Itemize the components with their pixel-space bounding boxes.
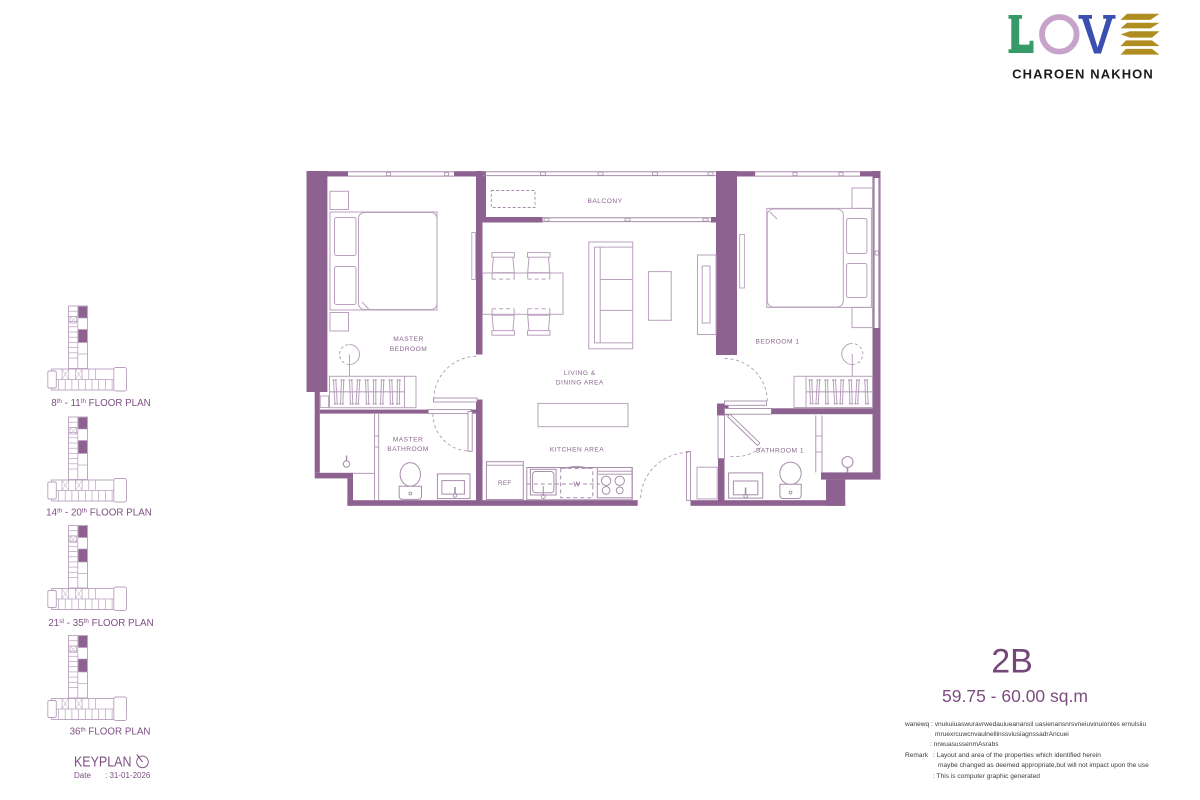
svg-text:: Layout and area of the prope: : Layout and area of the properties whic… [933, 752, 1101, 759]
svg-text:: This is computer graphic gen: : This is computer graphic generated [933, 773, 1040, 780]
svg-text:MASTER: MASTER [393, 437, 423, 444]
svg-text:2B: 2B [991, 643, 1033, 681]
svg-text:MASTER: MASTER [393, 336, 423, 343]
svg-text:Remark: Remark [905, 752, 929, 759]
svg-text:8th - 11th FLOOR PLAN: 8th - 11th FLOOR PLAN [51, 398, 150, 409]
svg-text:maybe changed as deemed approp: maybe changed as deemed appropriate,but … [938, 762, 1149, 769]
svg-text:BEDROOM 1: BEDROOM 1 [755, 339, 799, 346]
svg-text:KITCHEN AREA: KITCHEN AREA [550, 447, 604, 454]
svg-text:21st - 35th FLOOR PLAN: 21st - 35th FLOOR PLAN [48, 618, 153, 629]
svg-text:: 31-01-2026: : 31-01-2026 [105, 771, 151, 780]
svg-text:mruexrcuwcnvaulnellinssviusiag: mruexrcuwcnvaulnellinssviusiagnssadrAncu… [935, 731, 1069, 738]
svg-text:14th - 20th FLOOR PLAN: 14th - 20th FLOOR PLAN [46, 507, 152, 518]
svg-text:BALCONY: BALCONY [587, 198, 622, 205]
svg-text:Date: Date [74, 771, 91, 780]
svg-text:LIVING &: LIVING & [564, 370, 596, 377]
svg-text:KEYPLAN: KEYPLAN [74, 755, 132, 771]
svg-text:DINING AREA: DINING AREA [556, 380, 604, 387]
svg-text:wanewq : vnukuiuaswuravrwedaui: wanewq : vnukuiuaswuravrwedauiueanansil … [904, 721, 1147, 728]
svg-text:59.75 - 60.00 sq.m: 59.75 - 60.00 sq.m [942, 686, 1088, 706]
svg-text:BATHROOM: BATHROOM [387, 446, 429, 453]
svg-text:BATHROOM 1: BATHROOM 1 [756, 447, 804, 454]
svg-text:CHAROEN NAKHON: CHAROEN NAKHON [1012, 67, 1154, 82]
svg-text:: nrwuasussenmAsrabs: : nrwuasussenmAsrabs [930, 741, 999, 748]
svg-text:REF: REF [498, 480, 512, 487]
svg-text:W: W [573, 482, 580, 489]
svg-text:36th FLOOR PLAN: 36th FLOOR PLAN [70, 726, 151, 737]
svg-text:BEDROOM: BEDROOM [390, 346, 428, 353]
